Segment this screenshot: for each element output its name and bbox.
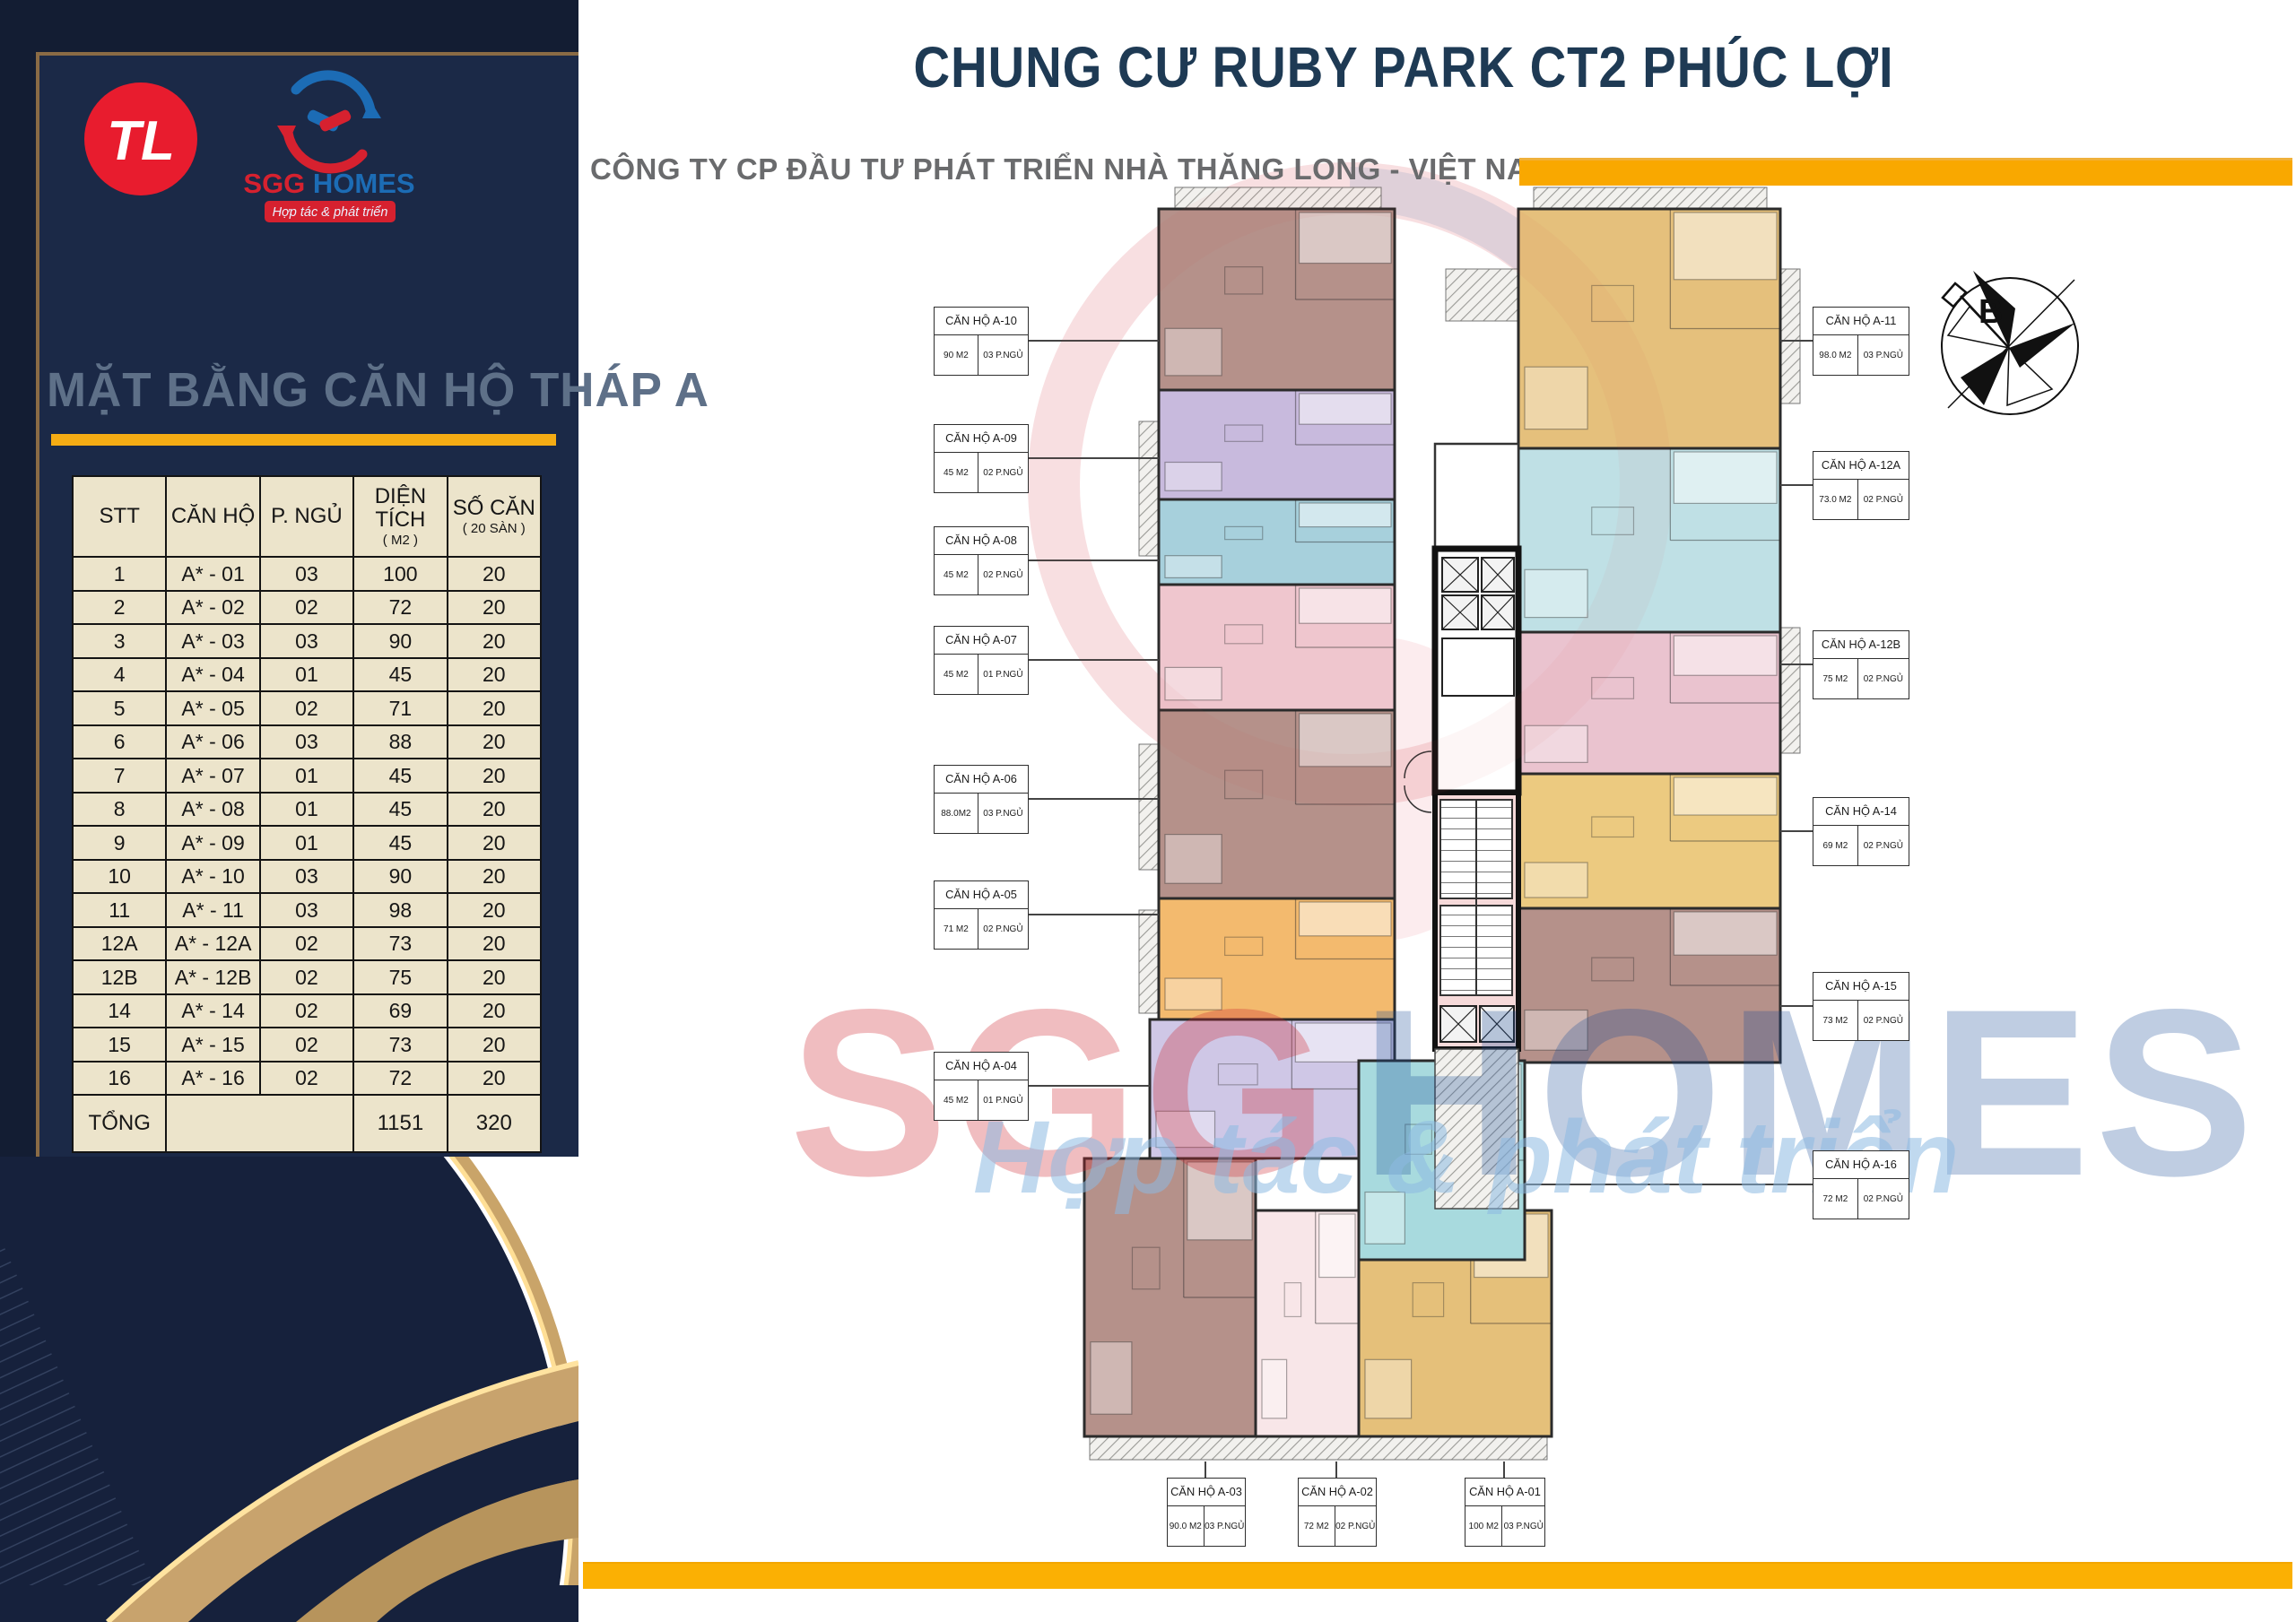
service-shafts — [1440, 1006, 1514, 1042]
table-row: 10A* - 10039020 — [73, 860, 541, 894]
unit-a-10 — [1159, 209, 1395, 390]
table-row: 1A* - 010310020 — [73, 557, 541, 591]
table-cell: 8 — [73, 793, 166, 827]
unit-bedrooms: 02 P.NGỦ — [978, 909, 1028, 949]
unit-a-11 — [1518, 209, 1780, 448]
unit-name: CĂN HỘ A-16 — [1813, 1151, 1909, 1179]
table-cell: A* - 15 — [166, 1028, 259, 1062]
unit-area: 71 M2 — [935, 909, 978, 949]
unit-label-a-12b: CĂN HỘ A-12B75 M202 P.NGỦ — [1813, 630, 1909, 699]
unit-a-05 — [1159, 898, 1395, 1019]
watermark-text: SGGHOMES — [789, 960, 2259, 1226]
unit-area: 69 M2 — [1813, 826, 1858, 865]
table-cell: 9 — [73, 826, 166, 860]
table-cell: 45 — [353, 826, 447, 860]
unit-bedrooms: 02 P.NGỦ — [978, 555, 1028, 594]
table-cell: 3 — [73, 624, 166, 658]
unit-label-a-16: CĂN HỘ A-1672 M202 P.NGỦ — [1813, 1150, 1909, 1219]
table-cell: 20 — [448, 927, 541, 961]
unit-bedrooms: 03 P.NGỦ — [1205, 1506, 1245, 1546]
blob-overlay — [1054, 188, 1646, 780]
unit-name: CĂN HỘ A-15 — [1813, 973, 1909, 1001]
stairwell — [1435, 793, 1518, 1049]
table-cell: A* - 02 — [166, 591, 259, 625]
table-cell: 72 — [353, 1062, 447, 1096]
table-cell: A* - 07 — [166, 759, 259, 793]
unit-a-02 — [1256, 1210, 1359, 1436]
unit-label-a-15: CĂN HỘ A-1573 M202 P.NGỦ — [1813, 972, 1909, 1041]
table-cell: 10 — [73, 860, 166, 894]
table-cell: A* - 12B — [166, 960, 259, 994]
unit-name: CĂN HỘ A-14 — [1813, 798, 1909, 826]
balcony-strips — [1090, 187, 1800, 1460]
unit-area: 45 M2 — [935, 453, 978, 492]
table-cell: 14 — [73, 994, 166, 1028]
tl-monogram: TL — [107, 110, 175, 172]
table-cell: 03 — [260, 725, 353, 759]
table-cell: 02 — [260, 1062, 353, 1096]
table-cell: 02 — [260, 960, 353, 994]
table-cell: 20 — [448, 557, 541, 591]
table-row: 3A* - 03039020 — [73, 624, 541, 658]
table-cell: 2 — [73, 591, 166, 625]
table-cell: A* - 05 — [166, 691, 259, 725]
unit-bedrooms: 03 P.NGỦ — [978, 794, 1028, 833]
unit-area: 73 M2 — [1813, 1001, 1858, 1040]
sidebar-title: MẶT BẰNG CĂN HỘ THÁP A — [47, 362, 550, 418]
table-cell: 01 — [260, 793, 353, 827]
unit-a-12b — [1518, 632, 1780, 774]
apartment-table-body: 1A* - 0103100202A* - 020272203A* - 03039… — [73, 557, 541, 1152]
unit-label-a-11: CĂN HỘ A-1198.0 M203 P.NGỦ — [1813, 307, 1909, 376]
table-row: 7A* - 07014520 — [73, 759, 541, 793]
table-cell: 16 — [73, 1062, 166, 1096]
unit-bedrooms: 01 P.NGỦ — [978, 1080, 1028, 1120]
table-cell: A* - 01 — [166, 557, 259, 591]
unit-a-04 — [1150, 1019, 1395, 1158]
unit-name: CĂN HỘ A-12A — [1813, 452, 1909, 480]
table-cell: 03 — [260, 557, 353, 591]
table-cell: A* - 12A — [166, 927, 259, 961]
unit-name: CĂN HỘ A-10 — [935, 308, 1028, 335]
table-cell: A* - 09 — [166, 826, 259, 860]
table-header-1: CĂN HỘ — [166, 476, 259, 557]
unit-area: 98.0 M2 — [1813, 335, 1858, 375]
unit-name: CĂN HỘ A-01 — [1465, 1479, 1544, 1506]
table-cell: 6 — [73, 725, 166, 759]
table-row: 12AA* - 12A027320 — [73, 927, 541, 961]
table-cell: 73 — [353, 1028, 447, 1062]
unit-bedrooms: 01 P.NGỦ — [978, 655, 1028, 694]
unit-a-09 — [1159, 390, 1395, 499]
table-cell: 20 — [448, 725, 541, 759]
entrance-hall — [1435, 1049, 1518, 1209]
unit-label-a-02: CĂN HỘ A-0272 M202 P.NGỦ — [1298, 1478, 1377, 1547]
unit-bedrooms: 02 P.NGỦ — [1858, 659, 1909, 698]
table-cell: 1151 — [353, 1095, 447, 1152]
table-cell: 12A — [73, 927, 166, 961]
bronze-frame-left — [36, 52, 39, 1157]
unit-bedrooms: 02 P.NGỦ — [978, 453, 1028, 492]
unit-a-06 — [1159, 710, 1395, 898]
unit-name: CĂN HỘ A-05 — [935, 881, 1028, 909]
table-cell: 02 — [260, 1028, 353, 1062]
table-cell: A* - 04 — [166, 658, 259, 692]
table-cell: 20 — [448, 759, 541, 793]
table-cell: 20 — [448, 826, 541, 860]
unit-name: CĂN HỘ A-04 — [935, 1053, 1028, 1080]
sgg-homes-wordmark: SGG HOMES — [243, 168, 414, 199]
table-cell: 5 — [73, 691, 166, 725]
table-header-3: DIỆN TÍCH( M2 ) — [353, 476, 447, 557]
unit-a-14 — [1518, 774, 1780, 908]
table-cell: 01 — [260, 759, 353, 793]
unit-bedrooms: 03 P.NGỦ — [1502, 1506, 1544, 1546]
table-cell: 320 — [448, 1095, 541, 1152]
sidebar: TL SGG HOMES Hợp tác & phát triển MẶT BẰ… — [0, 0, 578, 1622]
table-cell: 45 — [353, 793, 447, 827]
table-cell: A* - 08 — [166, 793, 259, 827]
unit-a-07 — [1159, 585, 1395, 710]
table-cell: TỔNG — [73, 1095, 166, 1152]
page: B SGGHOMES Hợp tác & phát triển CHUNG CƯ… — [0, 0, 2296, 1622]
unit-label-a-08: CĂN HỘ A-0845 M202 P.NGỦ — [934, 526, 1029, 595]
unit-name: CĂN HỘ A-09 — [935, 425, 1028, 453]
table-cell: 90 — [353, 860, 447, 894]
apartment-table-head: STTCĂN HỘP. NGỦDIỆN TÍCH( M2 )SỐ CĂN( 20… — [73, 476, 541, 557]
table-cell: A* - 16 — [166, 1062, 259, 1096]
table-header-0: STT — [73, 476, 166, 557]
table-cell: 98 — [353, 893, 447, 927]
table-cell: 45 — [353, 759, 447, 793]
table-cell: A* - 10 — [166, 860, 259, 894]
unit-label-a-03: CĂN HỘ A-0390.0 M203 P.NGỦ — [1167, 1478, 1246, 1547]
unit-label-a-12a: CĂN HỘ A-12A73.0 M202 P.NGỦ — [1813, 451, 1909, 520]
unit-bedrooms: 03 P.NGỦ — [1858, 335, 1909, 375]
table-row: 8A* - 08014520 — [73, 793, 541, 827]
tl-logo: TL — [84, 82, 197, 195]
compass-label: B — [1979, 293, 2003, 331]
table-row: 15A* - 15027320 — [73, 1028, 541, 1062]
corridor-doors — [1405, 751, 1431, 812]
table-cell: 15 — [73, 1028, 166, 1062]
table-cell: A* - 14 — [166, 994, 259, 1028]
unit-name: CĂN HỘ A-03 — [1168, 1479, 1245, 1506]
table-cell: 73 — [353, 927, 447, 961]
table-cell: 69 — [353, 994, 447, 1028]
table-cell: 20 — [448, 1062, 541, 1096]
company-accent-bar — [1519, 158, 2292, 186]
unit-area: 100 M2 — [1465, 1506, 1502, 1546]
unit-bedrooms: 02 P.NGỦ — [1858, 480, 1909, 519]
unit-area: 75 M2 — [1813, 659, 1858, 698]
watermark-tagline: Hợp tác & phát triển — [973, 1100, 1960, 1215]
table-header-2: P. NGỦ — [260, 476, 353, 557]
unit-label-a-09: CĂN HỘ A-0945 M202 P.NGỦ — [934, 424, 1029, 493]
unit-name: CĂN HỘ A-11 — [1813, 308, 1909, 335]
table-cell: A* - 11 — [166, 893, 259, 927]
unit-bedrooms: 02 P.NGỦ — [1335, 1506, 1376, 1546]
table-cell — [166, 1095, 353, 1152]
table-cell: 72 — [353, 591, 447, 625]
table-cell: 12B — [73, 960, 166, 994]
unit-bedrooms: 02 P.NGỦ — [1858, 826, 1909, 865]
compass-icon: B — [1942, 271, 2078, 414]
unit-a-12a — [1518, 448, 1780, 632]
table-cell: 20 — [448, 691, 541, 725]
table-cell: A* - 03 — [166, 624, 259, 658]
table-cell: 20 — [448, 960, 541, 994]
table-cell: 20 — [448, 860, 541, 894]
table-cell: 88 — [353, 725, 447, 759]
unit-label-a-10: CĂN HỘ A-1090 M203 P.NGỦ — [934, 307, 1029, 376]
sidebar-title-underline — [51, 434, 556, 446]
unit-bedrooms: 02 P.NGỦ — [1858, 1179, 1909, 1219]
unit-area: 90 M2 — [935, 335, 978, 375]
unit-area: 73.0 M2 — [1813, 480, 1858, 519]
table-cell: 20 — [448, 893, 541, 927]
unit-area: 90.0 M2 — [1168, 1506, 1205, 1546]
page-title: CHUNG CƯ RUBY PARK CT2 PHÚC LỢI — [721, 34, 2086, 100]
company-name: CÔNG TY CP ĐẦU TƯ PHÁT TRIỂN NHÀ THĂNG L… — [590, 152, 1553, 186]
unit-name: CĂN HỘ A-06 — [935, 766, 1028, 794]
table-row: 14A* - 14026920 — [73, 994, 541, 1028]
unit-label-a-14: CĂN HỘ A-1469 M202 P.NGỦ — [1813, 797, 1909, 866]
logo-watermark-blob — [1054, 188, 1646, 941]
table-row: 16A* - 16027220 — [73, 1062, 541, 1096]
core — [1405, 444, 1518, 1209]
bottom-accent-bar — [583, 1562, 2292, 1589]
bronze-frame-top — [36, 52, 578, 56]
table-row: 2A* - 02027220 — [73, 591, 541, 625]
table-row: 9A* - 09014520 — [73, 826, 541, 860]
unit-a-16 — [1359, 1061, 1525, 1260]
unit-area: 72 M2 — [1299, 1506, 1335, 1546]
unit-name: CĂN HỘ A-12B — [1813, 631, 1909, 659]
table-cell: 03 — [260, 860, 353, 894]
unit-name: CĂN HỘ A-07 — [935, 627, 1028, 655]
table-row: 5A* - 05027120 — [73, 691, 541, 725]
unit-area: 88.0M2 — [935, 794, 978, 833]
table-cell: 100 — [353, 557, 447, 591]
table-cell: 01 — [260, 658, 353, 692]
unit-bedrooms: 02 P.NGỦ — [1858, 1001, 1909, 1040]
table-cell: 02 — [260, 591, 353, 625]
apartment-table: STTCĂN HỘP. NGỦDIỆN TÍCH( M2 )SỐ CĂN( 20… — [72, 475, 542, 1153]
elevator-bank — [1442, 558, 1514, 696]
table-cell: 02 — [260, 994, 353, 1028]
unit-area: 45 M2 — [935, 555, 978, 594]
table-cell: 01 — [260, 826, 353, 860]
unit-name: CĂN HỘ A-02 — [1299, 1479, 1376, 1506]
table-cell: 20 — [448, 1028, 541, 1062]
unit-a-15 — [1518, 908, 1780, 1063]
table-cell: 20 — [448, 994, 541, 1028]
table-cell: 11 — [73, 893, 166, 927]
table-cell: 20 — [448, 793, 541, 827]
unit-area: 72 M2 — [1813, 1179, 1858, 1219]
table-cell: 03 — [260, 624, 353, 658]
unit-area: 45 M2 — [935, 1080, 978, 1120]
table-cell: 4 — [73, 658, 166, 692]
unit-label-a-05: CĂN HỘ A-0571 M202 P.NGỦ — [934, 880, 1029, 950]
table-cell: 71 — [353, 691, 447, 725]
table-cell: 45 — [353, 658, 447, 692]
unit-a-03 — [1084, 1158, 1256, 1436]
table-cell: 90 — [353, 624, 447, 658]
table-row: 11A* - 11039820 — [73, 893, 541, 927]
table-row: 12BA* - 12B027520 — [73, 960, 541, 994]
sgg-tagline: Hợp tác & phát triển — [273, 205, 388, 220]
table-cell: 03 — [260, 893, 353, 927]
unit-a-08 — [1159, 499, 1395, 585]
table-cell: A* - 06 — [166, 725, 259, 759]
unit-label-a-07: CĂN HỘ A-0745 M201 P.NGỦ — [934, 626, 1029, 695]
table-cell: 7 — [73, 759, 166, 793]
unit-label-a-06: CĂN HỘ A-0688.0M203 P.NGỦ — [934, 765, 1029, 834]
unit-name: CĂN HỘ A-08 — [935, 527, 1028, 555]
table-cell: 20 — [448, 658, 541, 692]
unit-a-01 — [1359, 1210, 1552, 1436]
unit-bedrooms: 03 P.NGỦ — [978, 335, 1028, 375]
table-cell: 20 — [448, 624, 541, 658]
table-cell: 1 — [73, 557, 166, 591]
unit-label-a-01: CĂN HỘ A-01100 M203 P.NGỦ — [1465, 1478, 1545, 1547]
table-total-row: TỔNG1151320 — [73, 1095, 541, 1152]
table-cell: 20 — [448, 591, 541, 625]
table-cell: 02 — [260, 691, 353, 725]
table-row: 6A* - 06038820 — [73, 725, 541, 759]
table-cell: 75 — [353, 960, 447, 994]
table-header-4: SỐ CĂN( 20 SÀN ) — [448, 476, 541, 557]
unit-label-a-04: CĂN HỘ A-0445 M201 P.NGỦ — [934, 1052, 1029, 1121]
unit-area: 45 M2 — [935, 655, 978, 694]
table-row: 4A* - 04014520 — [73, 658, 541, 692]
table-cell: 02 — [260, 927, 353, 961]
